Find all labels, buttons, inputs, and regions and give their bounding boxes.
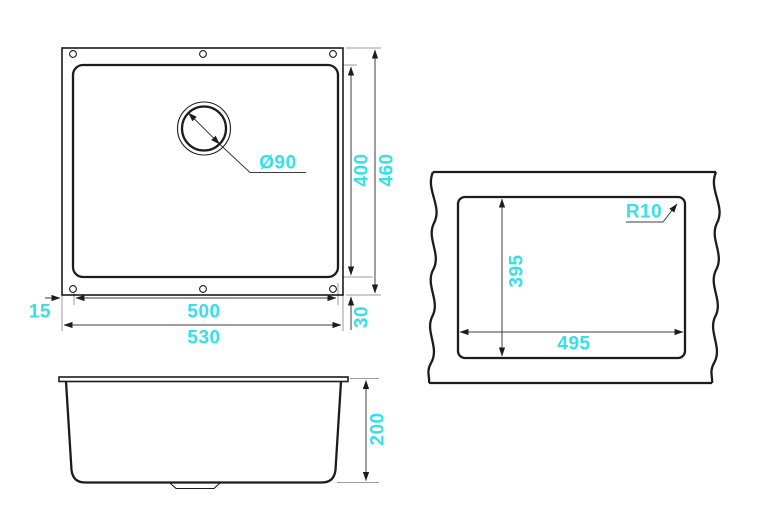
sink-rim-outline [62, 48, 343, 295]
dim-label-rim-bottom: 30 [352, 306, 373, 328]
top-view: Ø90 400 460 30 500 530 15 [29, 48, 398, 349]
dim-label-overall-width: 530 [187, 328, 220, 349]
dim-label-bowl-width: 500 [187, 302, 220, 323]
sink-bowl-outline [73, 65, 338, 277]
dim-label-overall-height: 460 [377, 153, 398, 186]
radius-leader-line [663, 204, 677, 222]
mounting-hole-bottom-left [70, 286, 77, 293]
cutout-view-dimension-lines [460, 199, 683, 356]
mounting-hole-bottom-right [330, 286, 337, 293]
dim-label-corner-radius: R10 [626, 202, 662, 223]
dim-label-cutout-height: 395 [507, 254, 528, 287]
dim-label-depth: 200 [368, 412, 389, 445]
side-view-labels: 200 [368, 412, 389, 445]
top-view-extension-lines [62, 48, 381, 331]
sink-technical-drawing: Ø90 400 460 30 500 530 15 395 495 R10 [0, 0, 762, 521]
mounting-hole-top-left [70, 51, 77, 58]
mounting-hole-top-right [330, 51, 337, 58]
countertop-break-edge-right [711, 172, 719, 383]
drawing-svg: Ø90 400 460 30 500 530 15 395 495 R10 [0, 0, 762, 521]
dim-label-rim-side: 15 [29, 302, 51, 323]
mounting-hole-top-center [200, 51, 207, 58]
drain-boss-profile [170, 483, 220, 489]
top-view-shapes [62, 48, 343, 295]
drain-diameter-arrow [189, 113, 220, 144]
bowl-profile [66, 382, 341, 483]
dim-label-bowl-height: 400 [352, 153, 373, 186]
flange-profile [59, 377, 348, 382]
mounting-hole-bottom-center [200, 286, 207, 293]
side-view-shapes [59, 377, 348, 489]
dim-label-cutout-width: 495 [557, 334, 590, 355]
cutout-view: 395 495 R10 [428, 172, 719, 383]
top-view-dimension-lines [45, 50, 375, 330]
countertop-break-edge-left [428, 172, 436, 383]
side-view: 200 [59, 377, 389, 489]
dim-label-drain-diameter: Ø90 [259, 153, 296, 174]
